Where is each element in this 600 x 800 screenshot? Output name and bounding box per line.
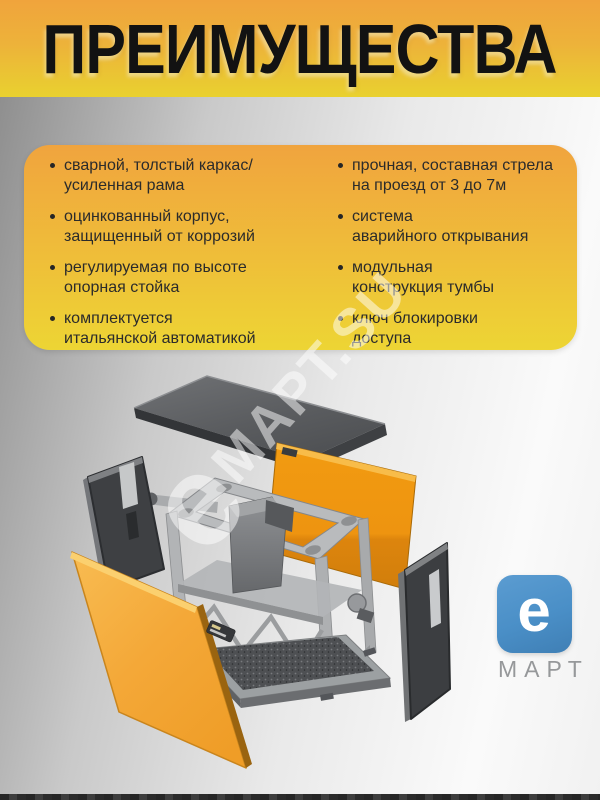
advantage-text: оцинкованный корпус, защищенный от корро… (64, 207, 255, 246)
emart-logo-badge: e (497, 575, 572, 653)
advantage-item: комплектуется итальянской автоматикой (50, 309, 338, 348)
bullet-dot-icon (50, 316, 55, 321)
advantage-text: система аварийного открывания (352, 207, 528, 246)
bullet-dot-icon (338, 316, 343, 321)
emart-logo: e МАРТ (492, 575, 576, 683)
advantage-item: оцинкованный корпус, защищенный от корро… (50, 207, 338, 246)
page-title: ПРЕИМУЩЕСТВА (43, 9, 557, 89)
advantage-item: регулируемая по высоте опорная стойка (50, 258, 338, 297)
bullet-dot-icon (50, 163, 55, 168)
advantage-text: сварной, толстый каркас/ усиленная рама (64, 156, 253, 195)
header-band: ПРЕИМУЩЕСТВА (0, 0, 600, 97)
advantages-right-column: прочная, составная стрела на проезд от 3… (338, 156, 569, 350)
logo-e-letter: e (517, 581, 550, 641)
logo-brand-text: МАРТ (492, 656, 576, 683)
advantage-item: система аварийного открывания (338, 207, 569, 246)
advantage-text: комплектуется итальянской автоматикой (64, 309, 256, 348)
bullet-dot-icon (50, 265, 55, 270)
bullet-dot-icon (338, 163, 343, 168)
bullet-dot-icon (50, 214, 55, 219)
advantages-card: сварной, толстый каркас/ усиленная рама … (24, 145, 577, 350)
stage-background: сварной, толстый каркас/ усиленная рама … (0, 97, 600, 800)
advantage-item: сварной, толстый каркас/ усиленная рама (50, 156, 338, 195)
advantage-text: прочная, составная стрела на проезд от 3… (352, 156, 553, 195)
bullet-dot-icon (338, 214, 343, 219)
advantage-item: ключ блокировки доступа (338, 309, 569, 348)
advantage-text: регулируемая по высоте опорная стойка (64, 258, 247, 297)
advantage-item: прочная, составная стрела на проезд от 3… (338, 156, 569, 195)
advantage-text: ключ блокировки доступа (352, 309, 478, 348)
bottom-border-strip (0, 794, 600, 800)
advantages-left-column: сварной, толстый каркас/ усиленная рама … (50, 156, 338, 350)
slide: ПРЕИМУЩЕСТВА сварной, толстый каркас/ ус… (0, 0, 600, 800)
bullet-dot-icon (338, 265, 343, 270)
advantage-item: модульная конструкция тумбы (338, 258, 569, 297)
advantage-text: модульная конструкция тумбы (352, 258, 494, 297)
